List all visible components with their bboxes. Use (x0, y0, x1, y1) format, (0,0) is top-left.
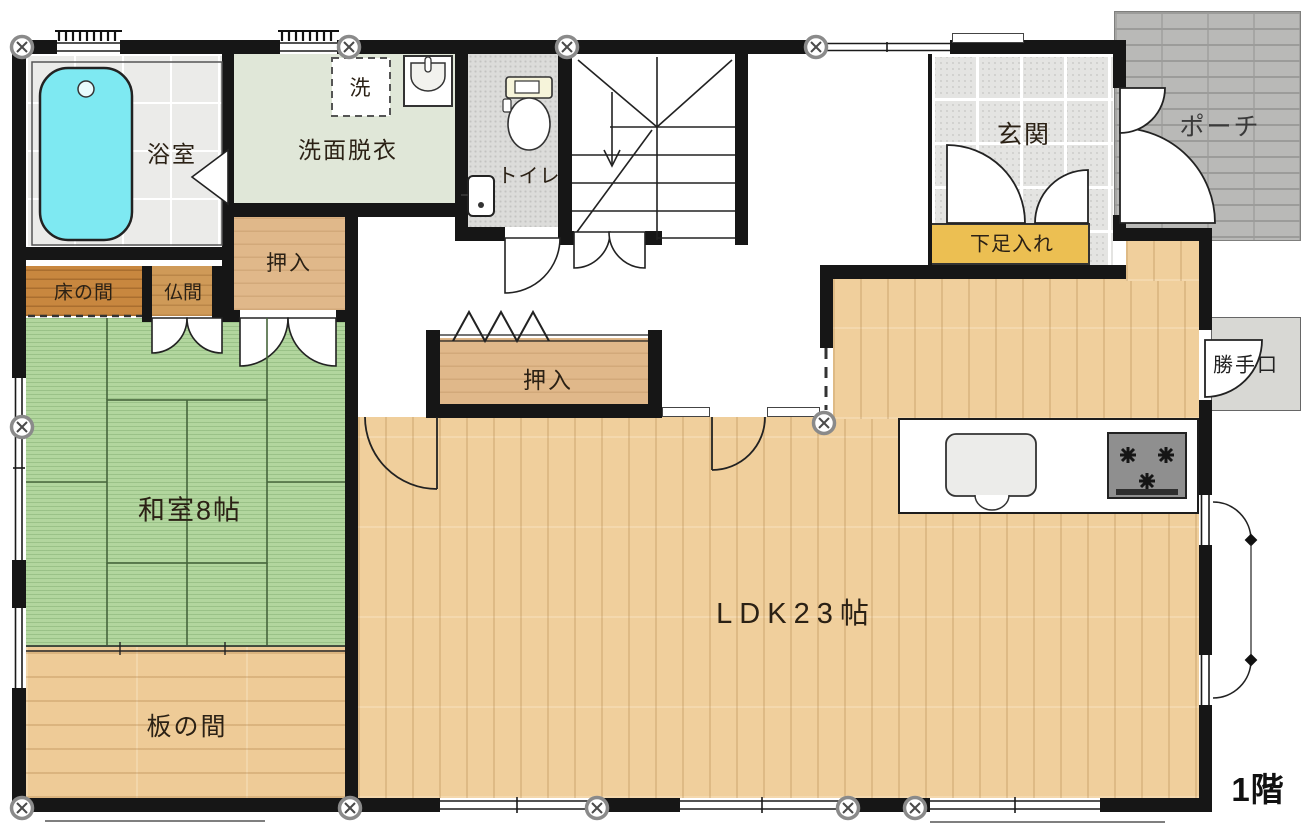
toilet-door-arc (505, 238, 560, 293)
label-tokonoma: 床の間 (54, 278, 114, 305)
sliding-partition (26, 642, 345, 655)
window-top-hall (818, 42, 950, 52)
window-top-bathroom (55, 31, 122, 53)
bathtub-icon (40, 68, 132, 240)
window-bottom-3 (930, 797, 1100, 813)
butsuma-door-arcs (152, 318, 222, 353)
bathroom-folding-door-icon (192, 150, 228, 204)
label-bathroom: 浴室 (147, 135, 197, 169)
eave-lines (45, 821, 1165, 822)
label-porch: ポーチ (1179, 107, 1260, 143)
ldk-door-arc-right (712, 417, 765, 470)
label-butsuma: 仏間 (164, 278, 202, 305)
staircase-down-icon (572, 57, 735, 240)
window-bottom-1 (440, 797, 595, 813)
label-entrance: 玄関 (997, 115, 1051, 151)
toilet-icon (503, 77, 552, 150)
kitchen-sink-icon (946, 434, 1036, 510)
washbasin-icon (404, 56, 452, 106)
label-ldk: LDK23帖 (716, 590, 876, 632)
label-toilet: トイレ (498, 160, 561, 189)
label-closet-upper: 押入 (266, 247, 312, 277)
window-left-washitsu (13, 378, 25, 560)
label-floor: 1階 (1231, 763, 1284, 811)
gas-stove-icon (1108, 433, 1186, 498)
label-itanoma: 板の間 (146, 707, 227, 743)
ldk-door-arc-left (365, 417, 437, 489)
accordion-door-icon (440, 312, 648, 341)
tatami-mat-lines (26, 318, 345, 645)
label-back-door: 勝手口 (1213, 349, 1279, 378)
label-washer: 洗 (350, 72, 373, 102)
label-washitsu: 和室8帖 (138, 489, 242, 528)
closet-door-arcs (240, 318, 336, 366)
window-bottom-2 (680, 797, 845, 813)
window-right-upper (1199, 495, 1212, 545)
casement-window-arcs (1213, 502, 1257, 698)
hand-basin-icon (461, 176, 494, 216)
label-shoe-cabinet: 下足入れ (970, 228, 1054, 257)
plan-overlay (0, 0, 1310, 830)
window-left-itanoma (13, 608, 25, 688)
window-right-lower (1199, 655, 1212, 705)
label-closet-center: 押入 (523, 361, 573, 395)
window-top-washroom (278, 31, 339, 53)
entrance-inner-door-arcs (947, 145, 1088, 223)
label-washroom: 洗面脱衣 (298, 131, 398, 165)
floor-plan: 浴室 洗面脱衣 洗 トイレ 玄関 ポーチ 下足入れ 押入 床の間 仏間 押入 和… (0, 0, 1310, 830)
stairs-double-door-arc (574, 232, 645, 268)
